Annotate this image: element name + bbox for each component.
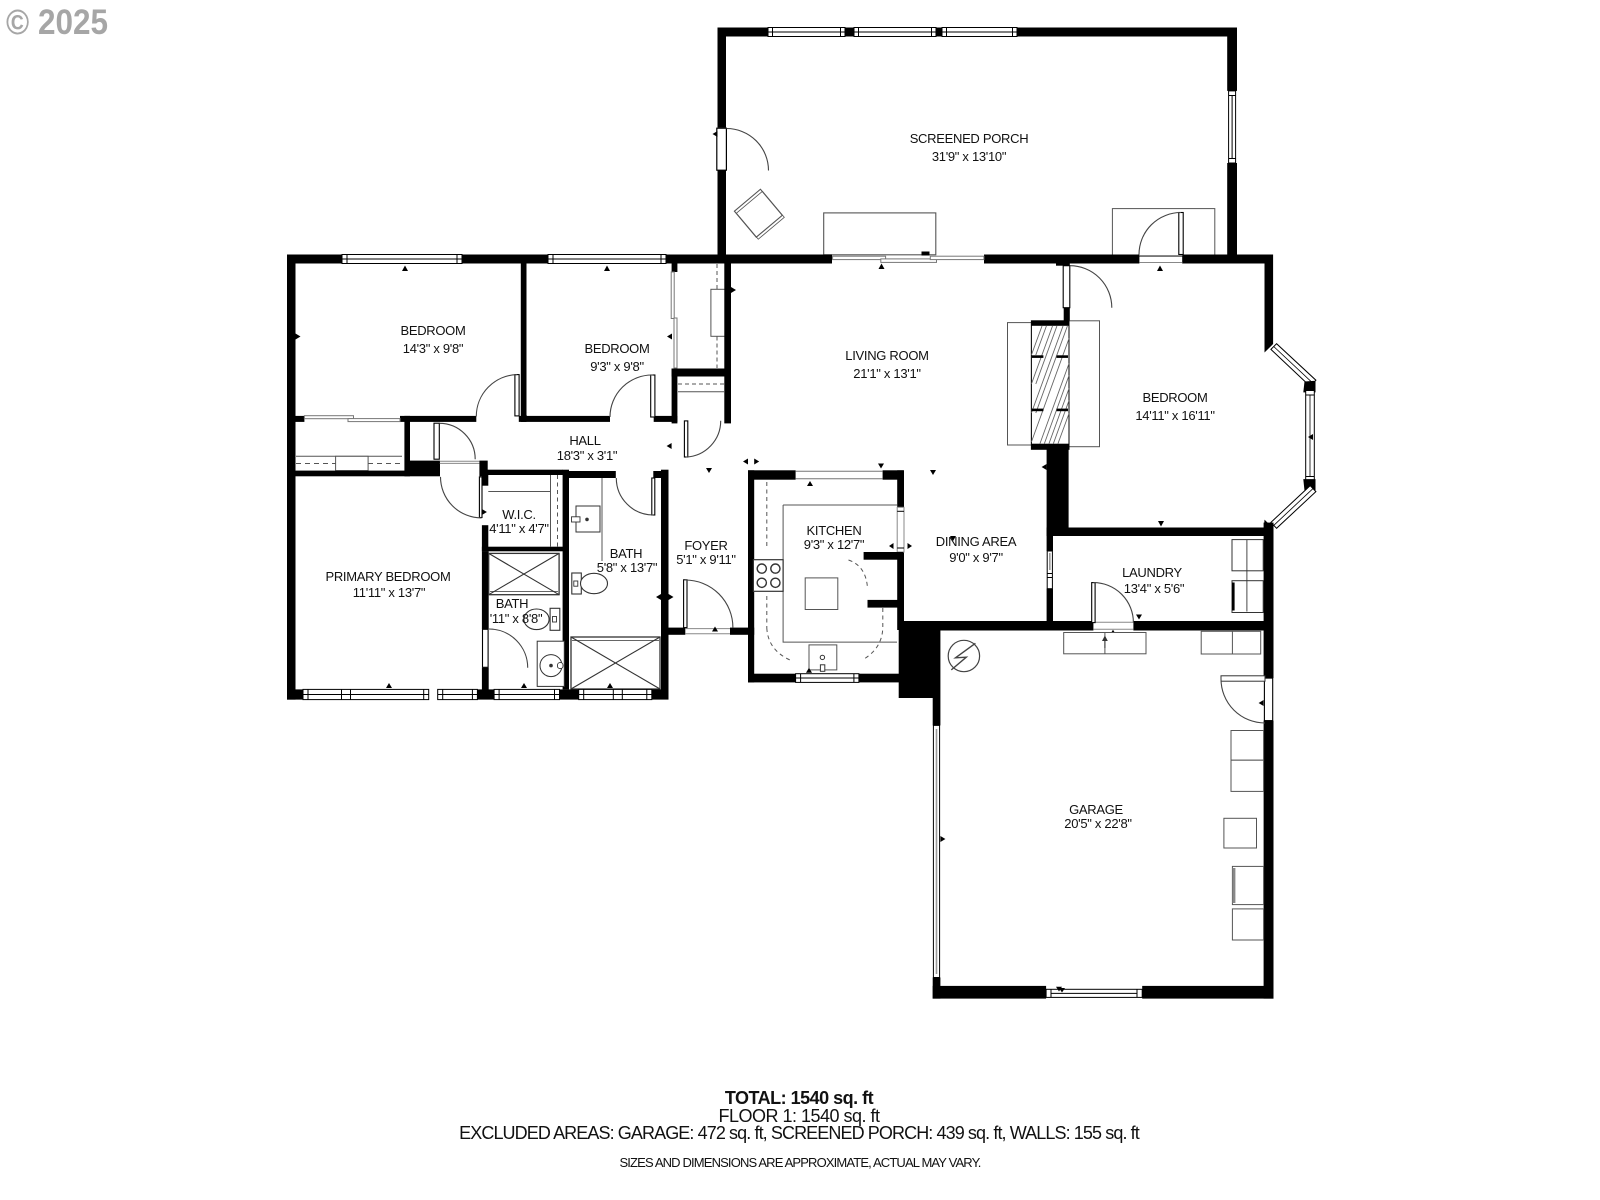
svg-text:20'5" x 22'8": 20'5" x 22'8"	[1064, 816, 1132, 831]
svg-text:© 2025: © 2025	[6, 3, 108, 42]
svg-text:18'3" x 3'1": 18'3" x 3'1"	[557, 448, 618, 463]
svg-text:5'1" x 9'11": 5'1" x 9'11"	[676, 552, 736, 567]
svg-text:W.I.C.: W.I.C.	[502, 507, 536, 522]
svg-text:BEDROOM: BEDROOM	[400, 323, 465, 338]
svg-text:EXCLUDED AREAS: GARAGE: 472 sq: EXCLUDED AREAS: GARAGE: 472 sq. ft, SCRE…	[459, 1123, 1140, 1143]
svg-text:FOYER: FOYER	[684, 538, 727, 553]
svg-text:BATH: BATH	[610, 546, 643, 561]
svg-text:'11" x 8'8": '11" x 8'8"	[490, 611, 543, 626]
svg-text:11'11" x 13'7": 11'11" x 13'7"	[353, 585, 426, 600]
svg-text:13'4" x 5'6": 13'4" x 5'6"	[1124, 581, 1185, 596]
svg-text:KITCHEN: KITCHEN	[807, 523, 862, 538]
svg-text:TOTAL: 1540 sq. ft: TOTAL: 1540 sq. ft	[725, 1088, 874, 1108]
svg-text:HALL: HALL	[569, 433, 600, 448]
svg-text:14'11" x 16'11": 14'11" x 16'11"	[1135, 408, 1215, 423]
svg-text:9'3" x 9'8": 9'3" x 9'8"	[590, 359, 644, 374]
svg-text:SCREENED PORCH: SCREENED PORCH	[910, 131, 1029, 146]
svg-text:5'8" x 13'7": 5'8" x 13'7"	[597, 560, 658, 575]
svg-text:9'0" x 9'7": 9'0" x 9'7"	[949, 550, 1003, 565]
svg-text:4'11" x 4'7": 4'11" x 4'7"	[489, 521, 549, 536]
svg-text:PRIMARY BEDROOM: PRIMARY BEDROOM	[325, 569, 450, 584]
svg-text:9'3" x 12'7": 9'3" x 12'7"	[804, 537, 865, 552]
svg-text:DINING AREA: DINING AREA	[936, 534, 1017, 549]
svg-text:31'9" x 13'10": 31'9" x 13'10"	[932, 149, 1007, 164]
svg-text:BATH: BATH	[496, 596, 529, 611]
svg-text:BEDROOM: BEDROOM	[584, 341, 649, 356]
svg-text:GARAGE: GARAGE	[1069, 802, 1123, 817]
svg-text:BEDROOM: BEDROOM	[1142, 390, 1207, 405]
svg-text:SIZES AND DIMENSIONS ARE APPRO: SIZES AND DIMENSIONS ARE APPROXIMATE, AC…	[619, 1155, 980, 1170]
svg-text:LAUNDRY: LAUNDRY	[1122, 565, 1182, 580]
svg-text:21'1" x 13'1": 21'1" x 13'1"	[853, 366, 921, 381]
svg-text:LIVING ROOM: LIVING ROOM	[845, 348, 928, 363]
svg-text:14'3" x 9'8": 14'3" x 9'8"	[403, 341, 464, 356]
